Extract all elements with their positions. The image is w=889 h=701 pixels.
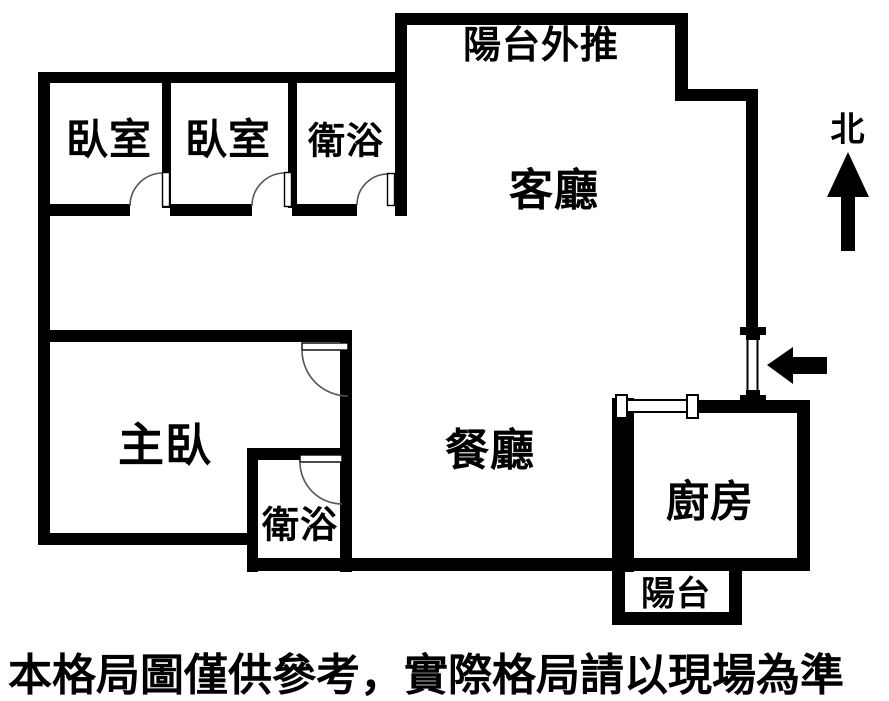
floor-plan: 陽台外推 臥室 臥室 衛浴 客廳 主臥 餐廳 廚房 衛浴 陽台 北 本格局圖僅供… bbox=[0, 0, 889, 701]
room-label-bedroom-b: 臥室 bbox=[185, 119, 271, 161]
room-label-bath-a: 衛浴 bbox=[308, 123, 384, 160]
door-swing-arc bbox=[252, 173, 285, 206]
wall-segment bbox=[38, 72, 50, 545]
entry-door-hinge-top-nub bbox=[746, 335, 760, 340]
floor-plan-drawing bbox=[0, 0, 889, 701]
room-label-dining: 餐廳 bbox=[445, 429, 535, 473]
wall-segment bbox=[247, 558, 810, 571]
room-label-bath-b: 衛浴 bbox=[262, 507, 338, 544]
wall-segment bbox=[38, 72, 395, 83]
wall-segment bbox=[292, 204, 357, 216]
wall-segment bbox=[247, 448, 258, 572]
wall-segment bbox=[675, 13, 688, 101]
door-swing-arc bbox=[300, 462, 342, 504]
sliding-door-end-cap bbox=[687, 395, 698, 418]
north-arrow-icon bbox=[827, 152, 869, 251]
door-leaf bbox=[163, 173, 170, 207]
wall-segment bbox=[38, 204, 130, 216]
disclaimer-text: 本格局圖僅供參考，實際格局請以現場為準 bbox=[8, 639, 844, 701]
wall-segment bbox=[746, 89, 758, 332]
wall-segment bbox=[38, 533, 258, 545]
door-leaf bbox=[285, 173, 292, 207]
sliding-door-panel bbox=[625, 400, 689, 412]
room-label-master: 主臥 bbox=[118, 422, 212, 468]
entry-door-leaf bbox=[748, 339, 758, 391]
wall-segment bbox=[612, 398, 634, 572]
wall-segment bbox=[38, 330, 352, 342]
door-leaf bbox=[302, 343, 348, 350]
entrance-arrow-icon bbox=[767, 347, 827, 384]
door-swing-arc bbox=[130, 173, 163, 206]
room-label-kitchen: 廚房 bbox=[666, 482, 754, 525]
wall-segment bbox=[395, 13, 407, 216]
wall-segment bbox=[170, 204, 252, 216]
wall-segment bbox=[797, 400, 810, 571]
door-leaf bbox=[300, 455, 342, 462]
room-label-balcony: 陽台 bbox=[641, 577, 711, 611]
entry-door-hinge-top bbox=[740, 327, 766, 335]
entry-door-symbol bbox=[740, 327, 766, 403]
north-label: 北 bbox=[831, 113, 866, 147]
sliding-door-end-cap bbox=[616, 395, 627, 418]
door-swing-arc bbox=[357, 174, 388, 205]
entry-door-hinge-bottom-nub bbox=[746, 390, 760, 395]
room-label-living: 客廳 bbox=[509, 169, 599, 213]
wall-segment bbox=[675, 89, 758, 101]
walls bbox=[38, 13, 810, 625]
door-leaf bbox=[388, 174, 395, 206]
entry-door-hinge-bottom bbox=[740, 395, 766, 403]
wall-segment bbox=[729, 571, 742, 625]
room-label-balcony-out: 陽台外推 bbox=[463, 26, 619, 64]
room-label-bedroom-a: 臥室 bbox=[66, 119, 152, 161]
